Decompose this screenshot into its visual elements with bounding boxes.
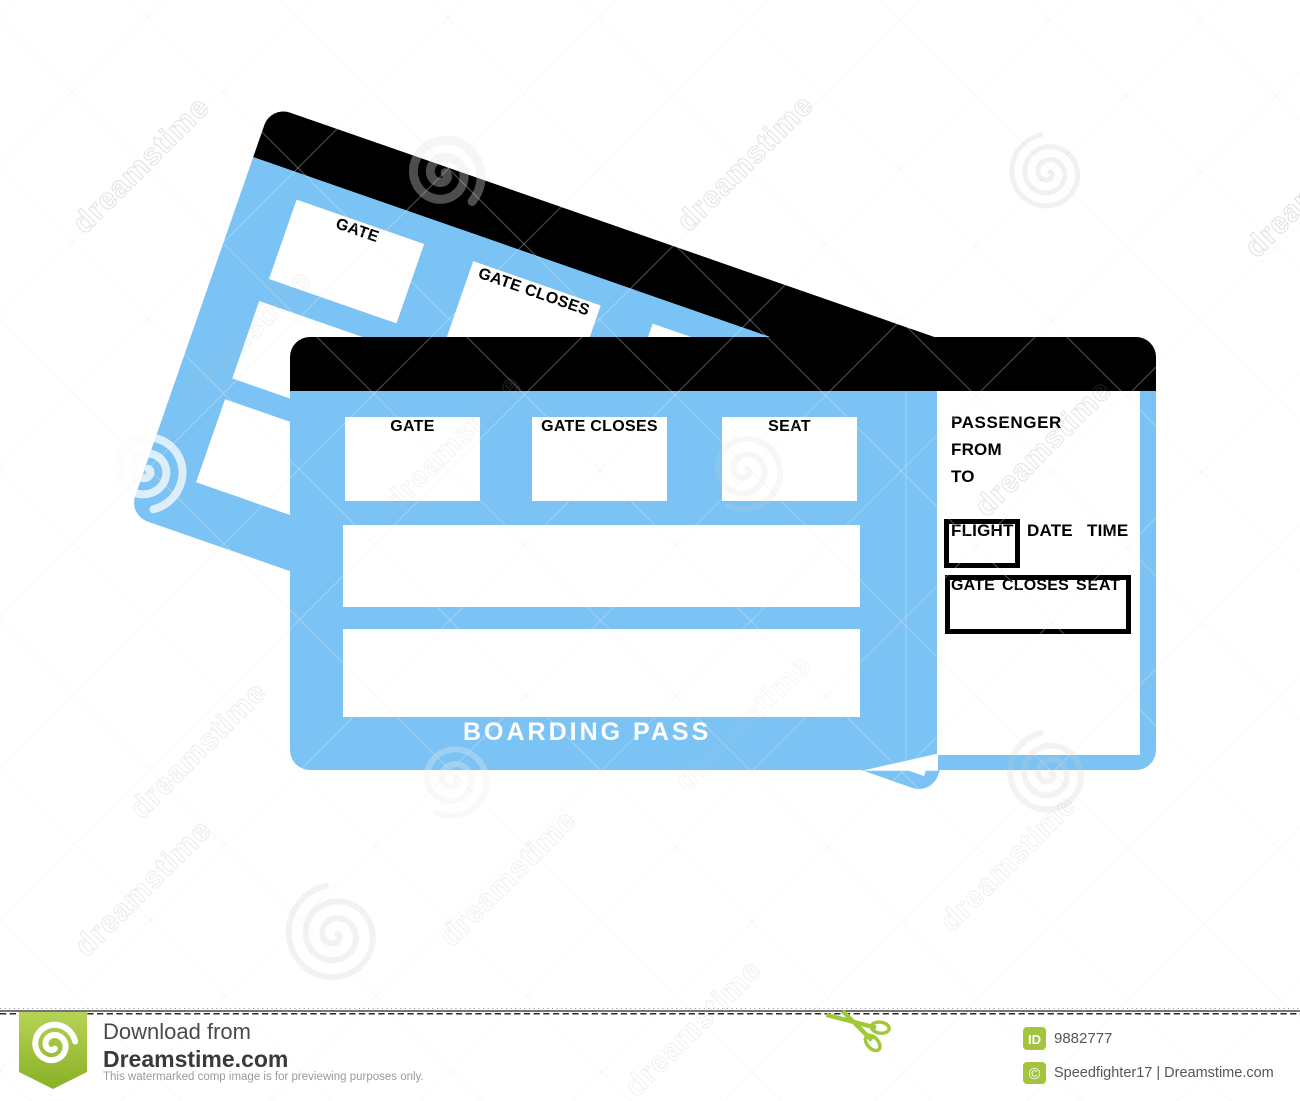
svg-text:ID: ID: [1028, 1032, 1041, 1047]
svg-text:©: ©: [1029, 1066, 1041, 1083]
